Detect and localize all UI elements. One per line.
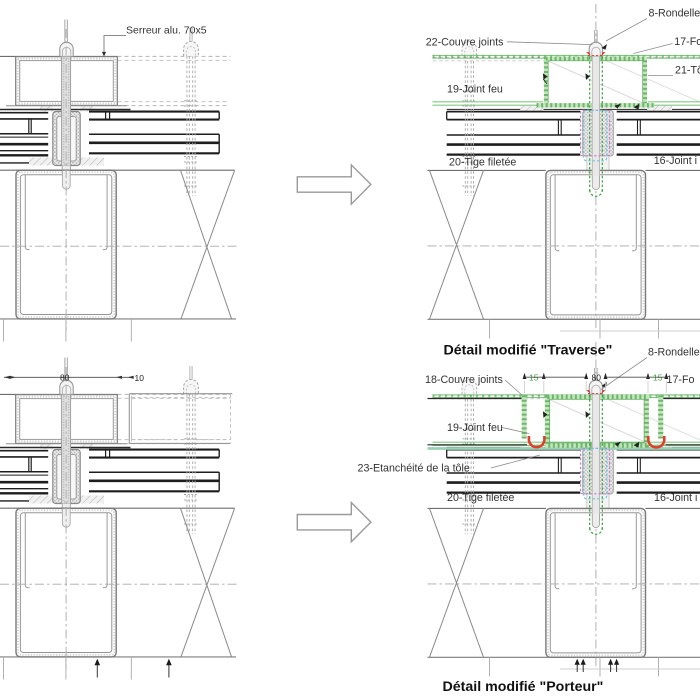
svg-text:8-Rondelle: 8-Rondelle [649,8,700,20]
svg-text:20-Tige filetée: 20-Tige filetée [449,157,516,169]
svg-text:17-Fo: 17-Fo [674,36,700,48]
svg-text:16-Joint i: 16-Joint i [654,492,697,504]
svg-text:22-Couvre joints: 22-Couvre joints [426,37,504,49]
svg-text:16-Joint i: 16-Joint i [654,155,697,167]
svg-text:80: 80 [60,373,70,383]
svg-text:21-Tô: 21-Tô [675,65,700,77]
svg-text:23-Etanchéité de la tôle: 23-Etanchéité de la tôle [358,463,470,475]
svg-text:18-Couvre joints: 18-Couvre joints [425,374,503,386]
svg-text:20-Tige filetée: 20-Tige filetée [447,492,514,504]
svg-text:19-Joint feu: 19-Joint feu [447,422,503,434]
svg-text:10: 10 [135,373,145,383]
svg-text:8-Rondelle: 8-Rondelle [648,347,700,359]
svg-text:Serreur alu. 70x5: Serreur alu. 70x5 [126,25,207,37]
svg-text:Détail modifié "Porteur": Détail modifié "Porteur" [443,679,604,695]
svg-text:17-Fo: 17-Fo [667,374,695,386]
svg-text:80: 80 [592,373,602,383]
svg-text:19-Joint feu: 19-Joint feu [447,84,503,96]
svg-text:Détail modifié "Traverse": Détail modifié "Traverse" [444,343,613,359]
